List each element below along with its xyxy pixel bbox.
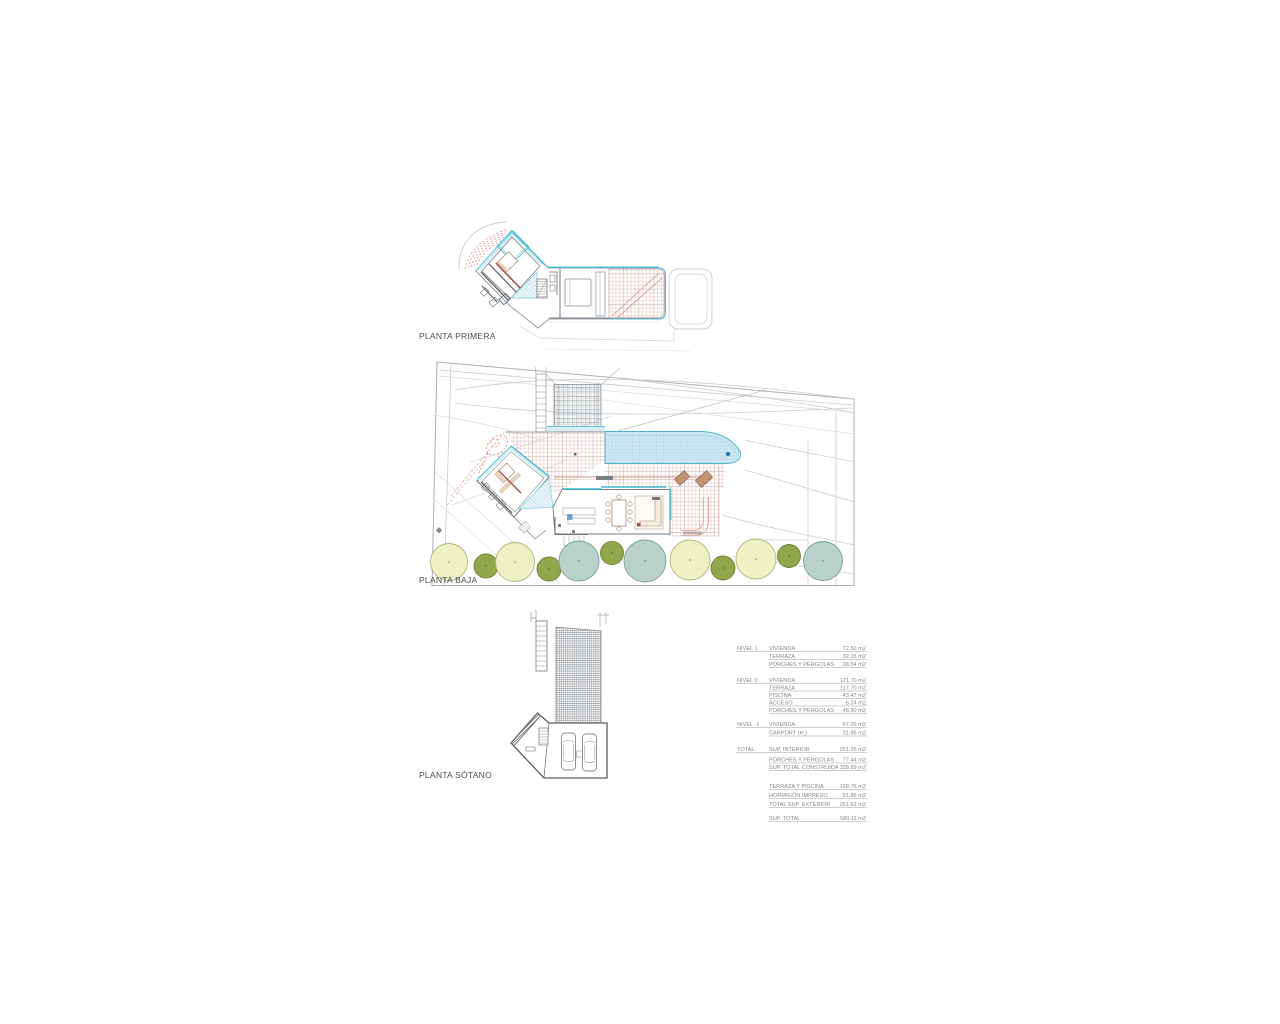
svg-text:TOTAL SUP. EXTERIOR: TOTAL SUP. EXTERIOR [769, 802, 830, 808]
svg-text:328.69 m2: 328.69 m2 [840, 765, 866, 771]
svg-text:HORMIGÓN IMPRESO: HORMIGÓN IMPRESO [769, 792, 828, 799]
svg-text:6.24 m2: 6.24 m2 [846, 701, 866, 707]
svg-text:ACCESO: ACCESO [769, 701, 793, 707]
svg-text:SUP. TOTAL: SUP. TOTAL [769, 816, 800, 822]
svg-text:121.70 m2: 121.70 m2 [840, 678, 866, 684]
svg-text:TOTAL: TOTAL [737, 747, 755, 753]
svg-text:77.44 m2: 77.44 m2 [843, 758, 866, 764]
svg-text:TERRAZA Y PISCINA: TERRAZA Y PISCINA [769, 784, 824, 790]
svg-text:NIVEL -1: NIVEL -1 [737, 722, 760, 728]
svg-text:VIVIENDA: VIVIENDA [769, 722, 795, 728]
svg-text:PORCHES Y PÉRGOLAS: PORCHES Y PÉRGOLAS [769, 707, 834, 714]
svg-text:199.76 m2: 199.76 m2 [840, 784, 866, 790]
svg-text:38.54 m2: 38.54 m2 [843, 662, 866, 668]
svg-text:31.86 m2: 31.86 m2 [843, 731, 866, 737]
svg-text:PLANTA BAJA: PLANTA BAJA [419, 575, 477, 585]
svg-text:TERRAZA: TERRAZA [769, 686, 795, 692]
svg-text:32.15 m2: 32.15 m2 [843, 654, 866, 660]
svg-text:VIVIENDA: VIVIENDA [769, 678, 795, 684]
svg-text:PORCHES Y PÉRGOLAS: PORCHES Y PÉRGOLAS [769, 661, 834, 668]
svg-text:CARPORT (H.): CARPORT (H.) [769, 731, 807, 737]
svg-text:57.05 m2: 57.05 m2 [843, 722, 866, 728]
svg-text:VIVIENDA: VIVIENDA [769, 646, 795, 652]
svg-text:PORCHES Y PÉRGOLAS: PORCHES Y PÉRGOLAS [769, 757, 834, 764]
svg-text:72.50 m2: 72.50 m2 [843, 646, 866, 652]
svg-text:NIVEL 1: NIVEL 1 [737, 646, 758, 652]
svg-text:PLANTA PRIMERA: PLANTA PRIMERA [419, 331, 496, 341]
svg-text:251.62 m2: 251.62 m2 [840, 802, 866, 808]
svg-text:NIVEL 0: NIVEL 0 [737, 678, 758, 684]
svg-text:43.47 m2: 43.47 m2 [843, 693, 866, 699]
svg-text:TERRAZA: TERRAZA [769, 654, 795, 660]
svg-text:SUP. TOTAL CONSTRUIDA: SUP. TOTAL CONSTRUIDA [769, 765, 839, 771]
svg-text:48.90 m2: 48.90 m2 [843, 708, 866, 714]
svg-text:117.70 m2: 117.70 m2 [840, 686, 866, 692]
svg-text:251.25 m2: 251.25 m2 [840, 747, 866, 753]
svg-text:SUP. INTERIOR: SUP. INTERIOR [769, 747, 810, 753]
svg-text:580.11 m2: 580.11 m2 [840, 816, 866, 822]
svg-text:PLANTA SÓTANO: PLANTA SÓTANO [419, 770, 492, 780]
svg-text:PISCINA: PISCINA [769, 693, 792, 699]
svg-text:51.86 m2: 51.86 m2 [843, 793, 866, 799]
